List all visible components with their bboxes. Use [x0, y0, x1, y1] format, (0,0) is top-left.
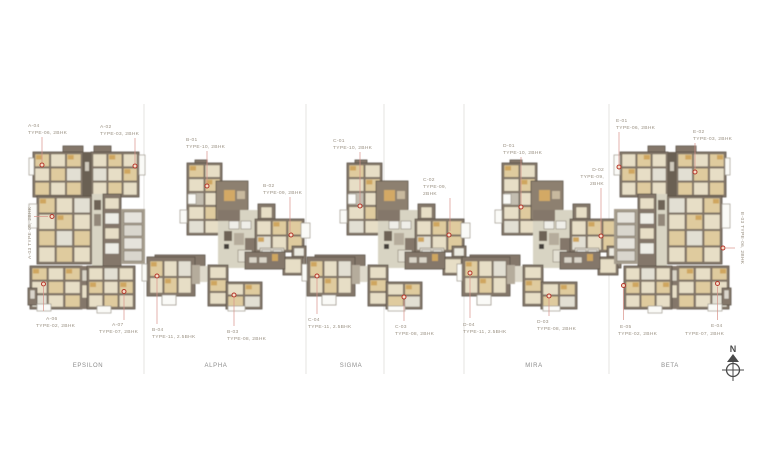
svg-text:C-03: C-03 [395, 324, 407, 330]
svg-text:D-03: D-03 [537, 319, 549, 325]
svg-text:TYPE-06, 2BHK: TYPE-06, 2BHK [616, 125, 656, 131]
svg-text:A-02: A-02 [100, 124, 112, 130]
svg-text:D-04: D-04 [463, 322, 475, 328]
svg-text:TYPE-09,: TYPE-09, [580, 174, 604, 180]
svg-text:C-02: C-02 [423, 177, 435, 183]
svg-text:EPSILON: EPSILON [73, 363, 104, 369]
svg-text:E-05: E-05 [620, 324, 632, 330]
svg-text:TYPE-11, 2.5BHK: TYPE-11, 2.5BHK [463, 329, 507, 335]
svg-text:TYPE-02, 2BHK: TYPE-02, 2BHK [618, 331, 658, 337]
svg-text:BETA: BETA [661, 363, 679, 369]
svg-text:TYPE-08, 2BHK: TYPE-08, 2BHK [537, 326, 577, 332]
svg-text:E-02: E-02 [693, 129, 705, 135]
svg-text:D-01: D-01 [503, 143, 515, 149]
svg-text:TYPE-02, 2BHK: TYPE-02, 2BHK [36, 323, 76, 329]
svg-text:TYPE-11, 2.5BHK: TYPE-11, 2.5BHK [152, 334, 196, 340]
svg-text:TYPE-07, 2BHK: TYPE-07, 2BHK [99, 329, 139, 335]
svg-text:TYPE-10, 2BHK: TYPE-10, 2BHK [503, 150, 543, 156]
svg-text:A-07: A-07 [112, 322, 124, 328]
svg-text:TYPE-09,: TYPE-09, [423, 184, 447, 190]
svg-text:C-04: C-04 [308, 317, 320, 323]
svg-text:TYPE-10, 2BHK: TYPE-10, 2BHK [186, 144, 226, 150]
svg-text:B-01: B-01 [186, 137, 198, 143]
svg-text:TYPE-10, 2BHK: TYPE-10, 2BHK [333, 145, 373, 151]
svg-text:N: N [730, 344, 737, 354]
svg-text:E-03 TYPE-06, 2BHK: E-03 TYPE-06, 2BHK [739, 212, 745, 265]
svg-text:TYPE-06, 2BHK: TYPE-06, 2BHK [28, 130, 68, 136]
svg-text:D-02: D-02 [592, 167, 604, 173]
svg-text:MIRA: MIRA [525, 363, 543, 369]
svg-text:TYPE-11, 2.5BHK: TYPE-11, 2.5BHK [308, 324, 352, 330]
svg-text:TYPE-07, 2BHK: TYPE-07, 2BHK [685, 331, 725, 337]
svg-text:C-01: C-01 [333, 138, 345, 144]
svg-text:A-04: A-04 [28, 123, 40, 129]
svg-text:2BHK: 2BHK [423, 191, 437, 197]
svg-text:E-01: E-01 [616, 118, 628, 124]
svg-text:B-04: B-04 [152, 327, 164, 333]
svg-text:TYPE-08, 2BHK: TYPE-08, 2BHK [227, 336, 267, 342]
svg-text:TYPE-09, 2BHK: TYPE-09, 2BHK [263, 190, 303, 196]
svg-text:B-02: B-02 [263, 183, 275, 189]
svg-text:ALPHA: ALPHA [205, 363, 228, 369]
svg-text:TYPE-03, 2BHK: TYPE-03, 2BHK [693, 136, 733, 142]
svg-text:A-06: A-06 [46, 316, 58, 322]
svg-text:2BHK: 2BHK [590, 181, 604, 187]
svg-text:TYPE-08, 2BHK: TYPE-08, 2BHK [395, 331, 435, 337]
svg-text:TYPE-03, 2BHK: TYPE-03, 2BHK [100, 131, 140, 137]
svg-text:A-03 TYPE-05, 2BHK: A-03 TYPE-05, 2BHK [27, 206, 33, 259]
svg-text:E-04: E-04 [711, 323, 723, 329]
svg-text:B-03: B-03 [227, 329, 239, 335]
svg-text:SIGMA: SIGMA [340, 363, 363, 369]
